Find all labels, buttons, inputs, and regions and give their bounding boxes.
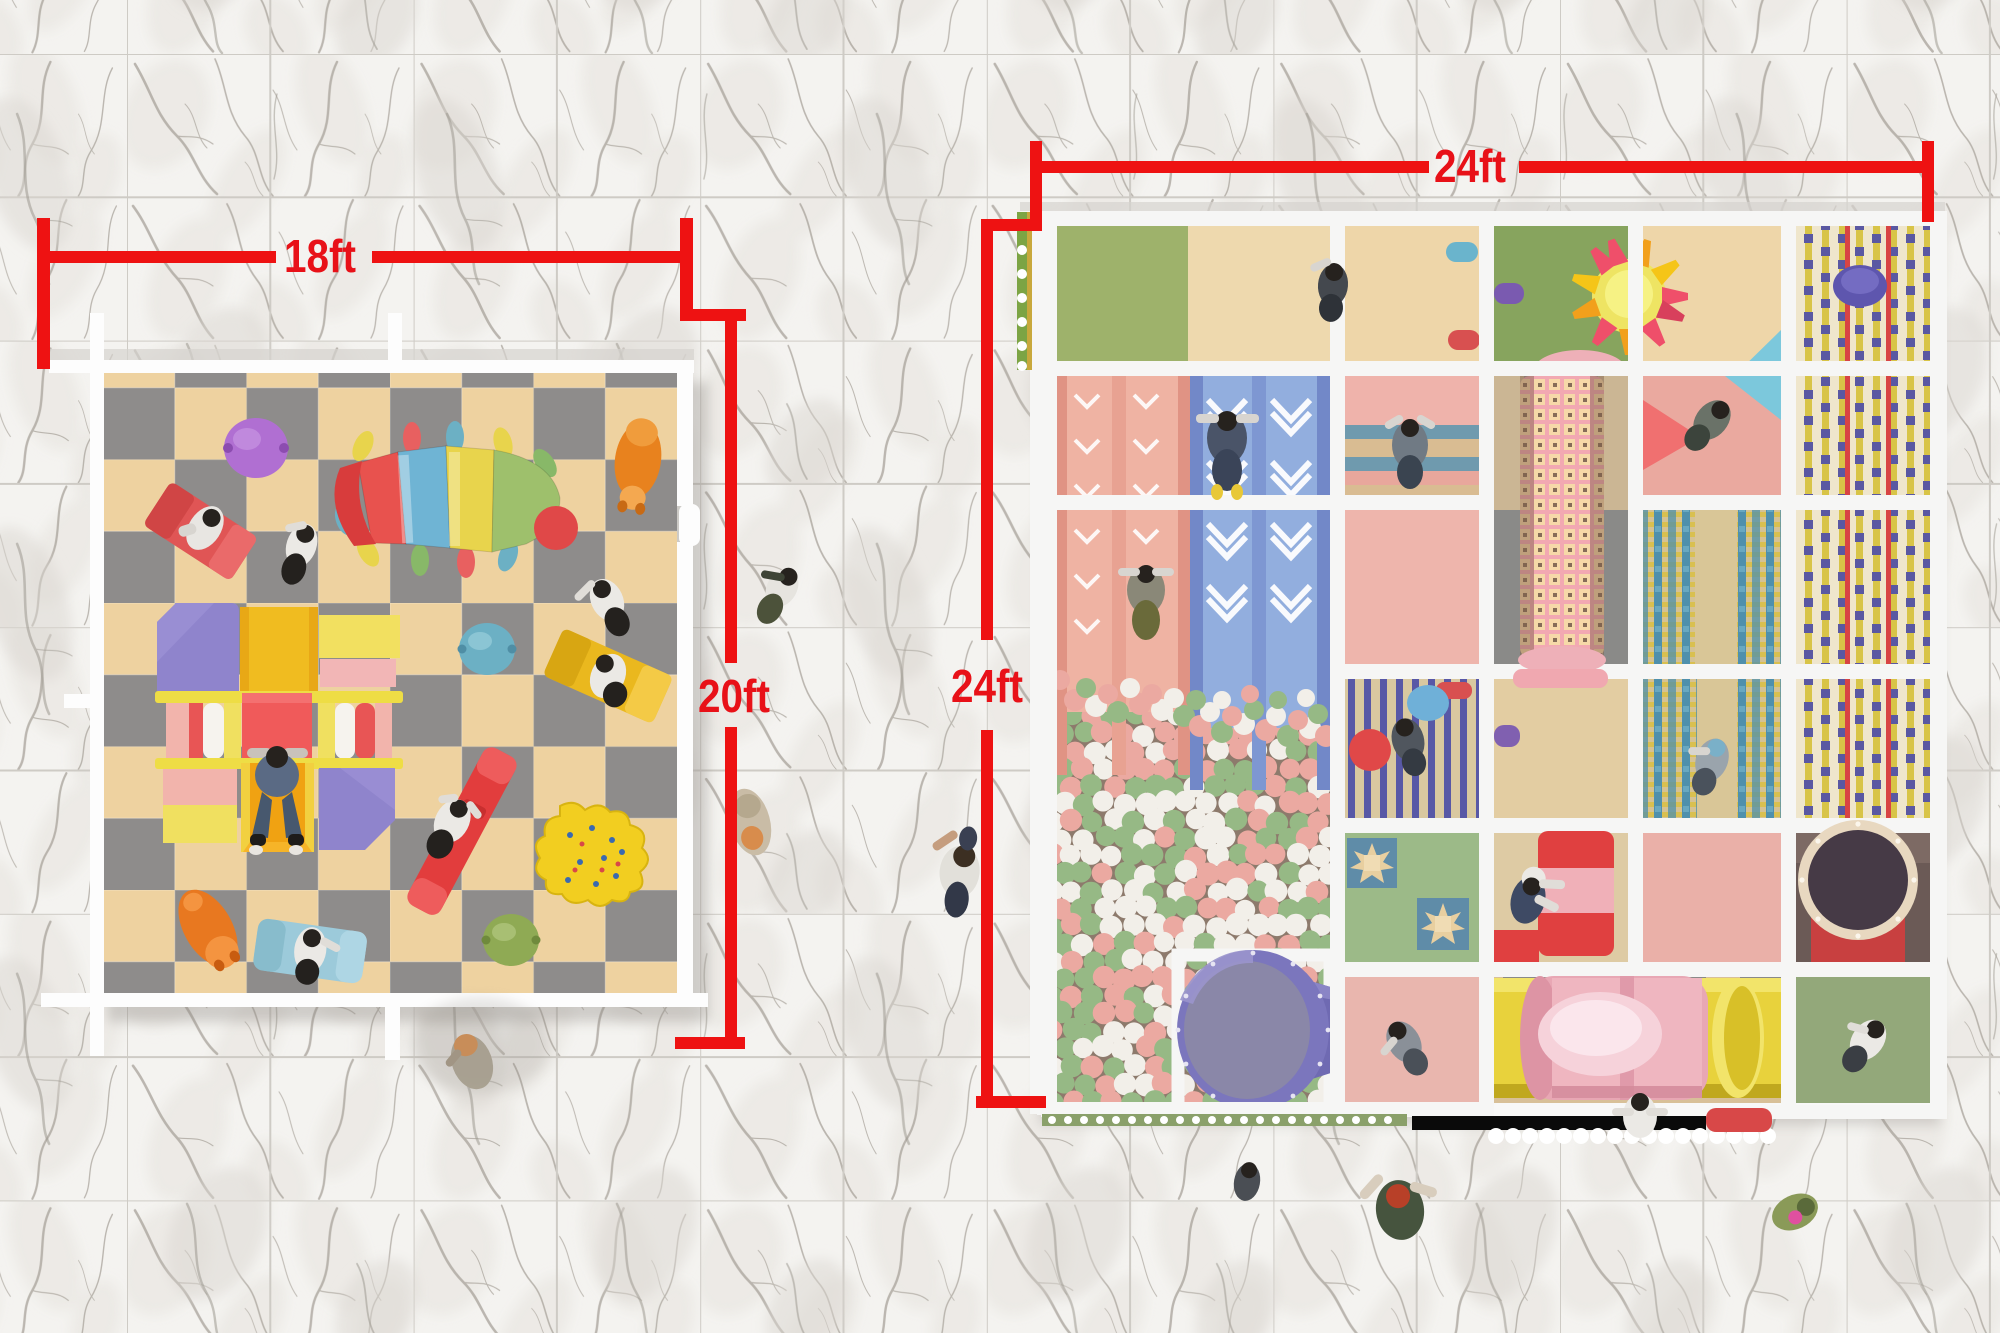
svg-text:24ft: 24ft xyxy=(1434,140,1506,192)
svg-text:18ft: 18ft xyxy=(284,230,356,282)
svg-text:24ft: 24ft xyxy=(951,660,1023,712)
svg-text:20ft: 20ft xyxy=(698,670,770,722)
